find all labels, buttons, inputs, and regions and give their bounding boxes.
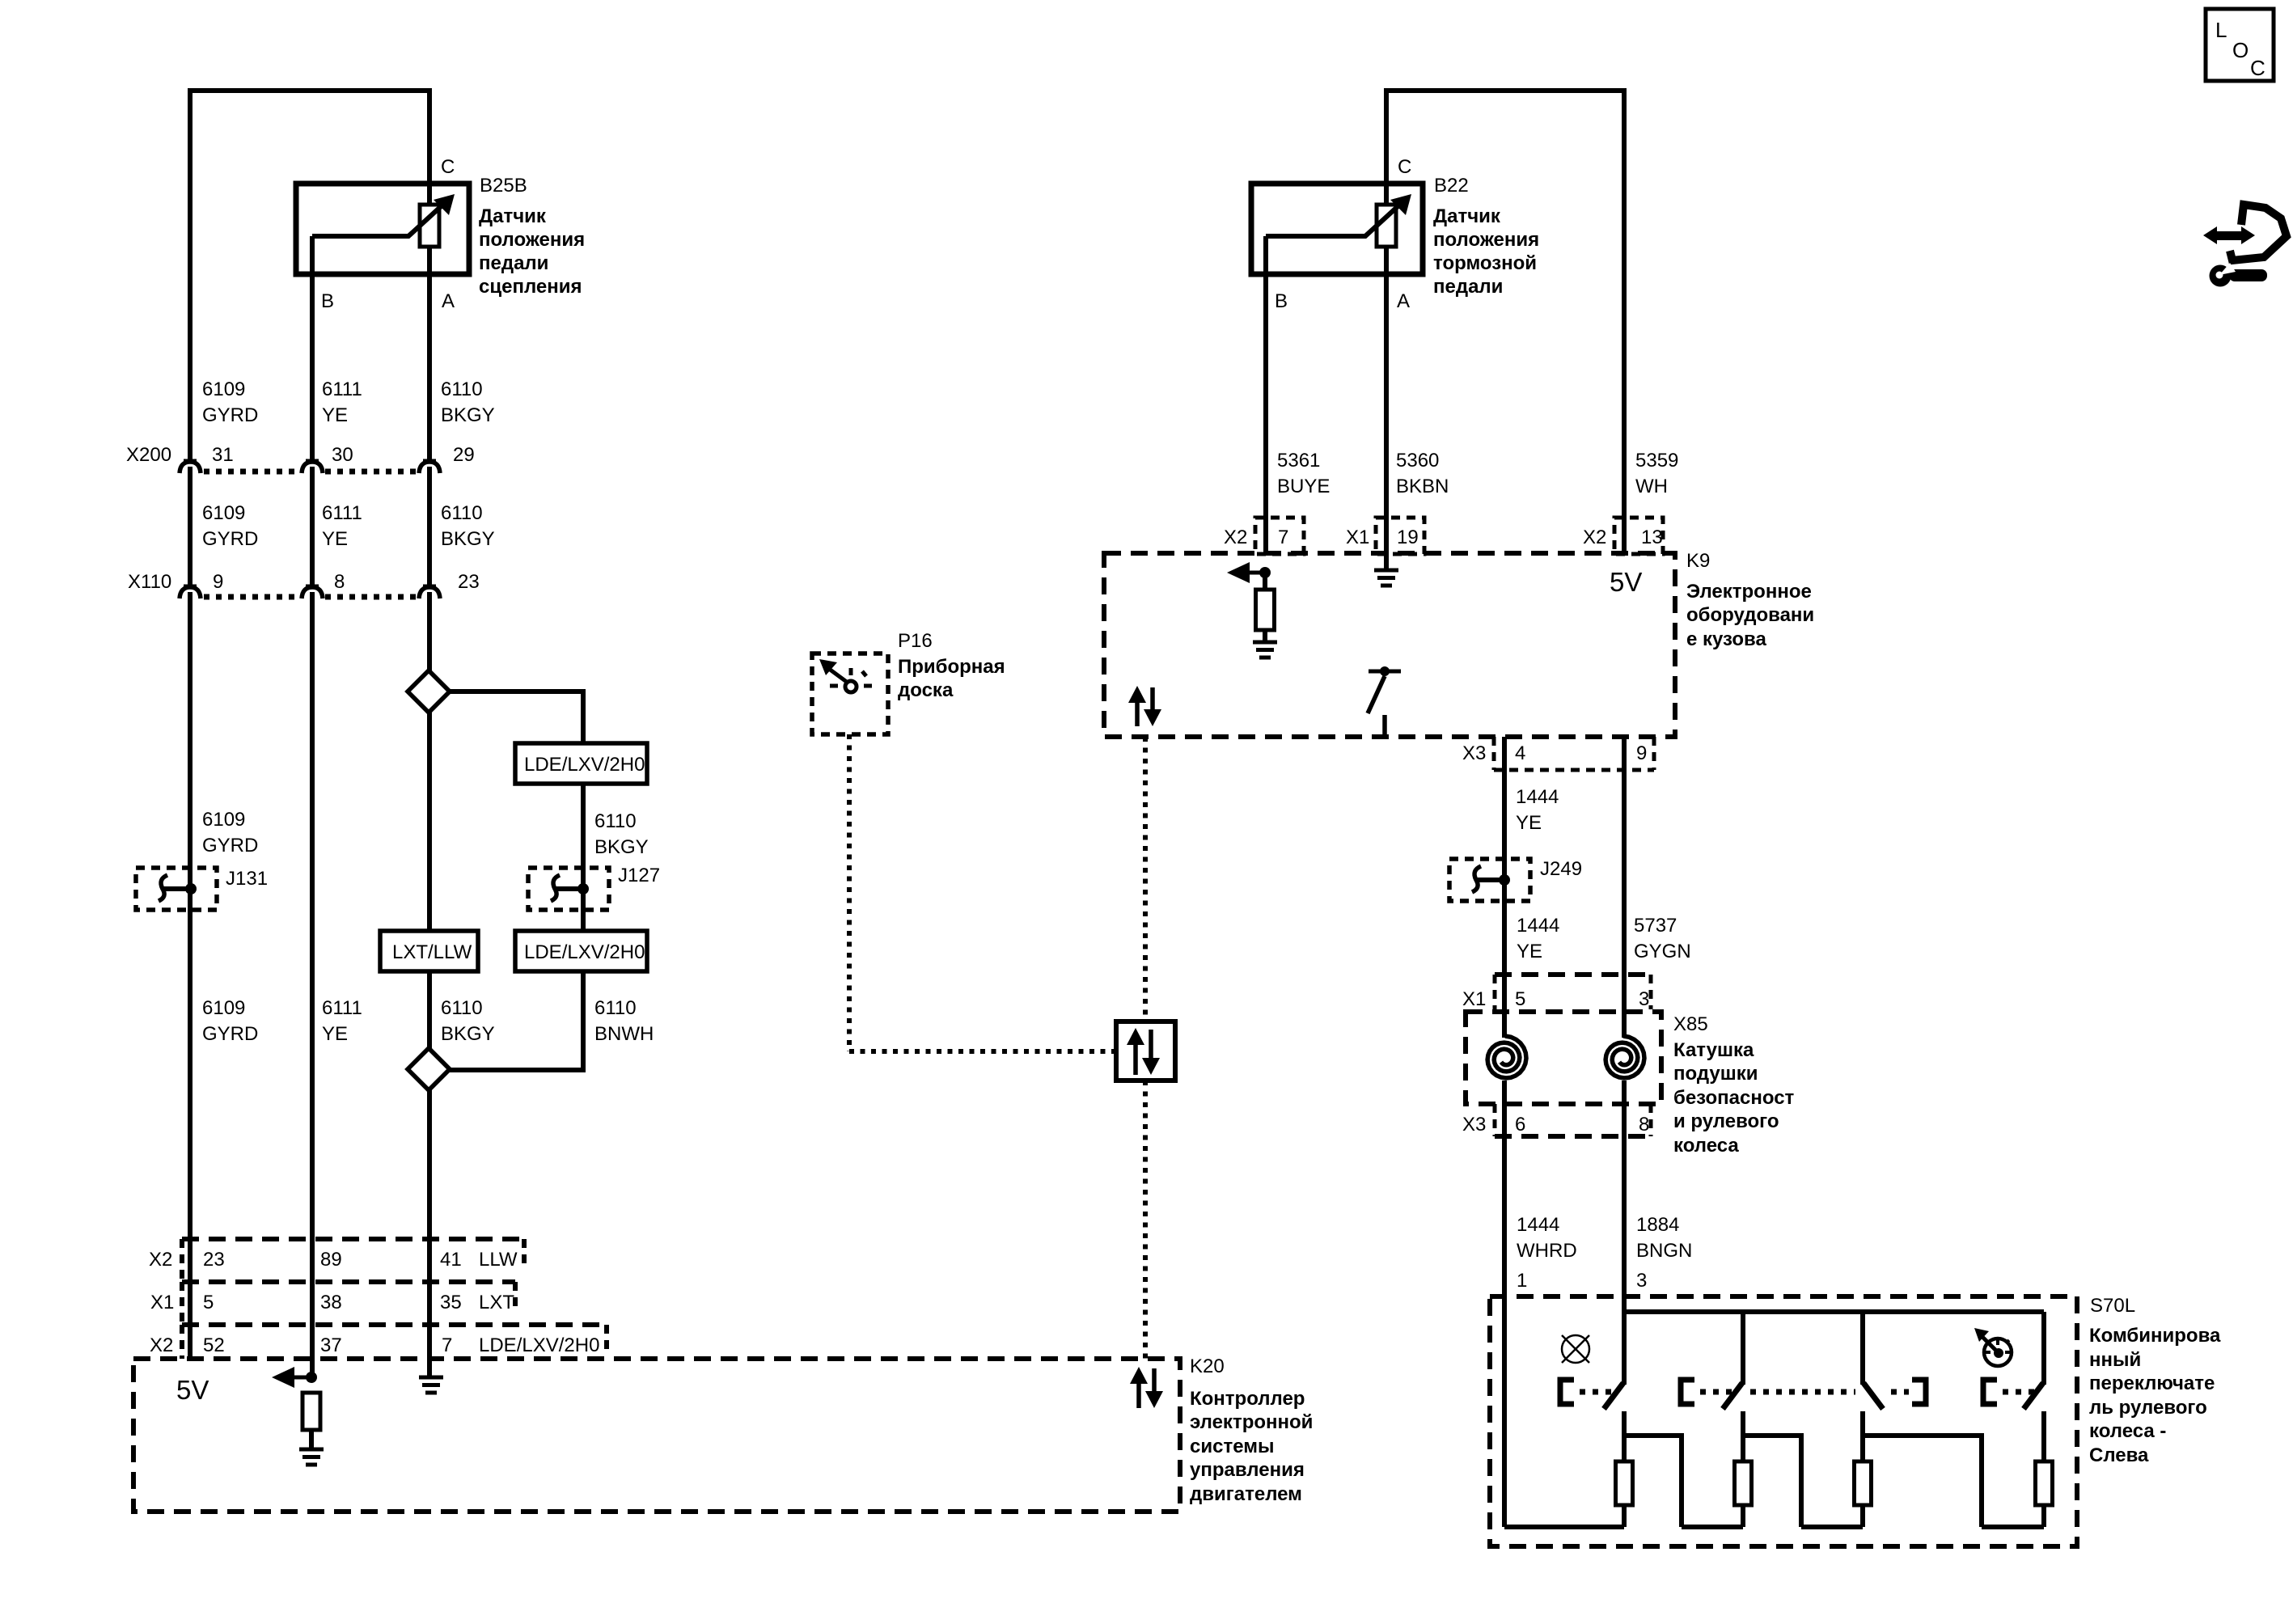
svg-text:переключате: переключате [2089, 1372, 2215, 1394]
svg-text:6110: 6110 [594, 997, 637, 1019]
svg-text:положения: положения [479, 229, 585, 251]
svg-text:BUYE: BUYE [1277, 476, 1330, 497]
svg-text:5: 5 [1515, 988, 1525, 1010]
svg-text:52: 52 [203, 1334, 225, 1356]
svg-text:5: 5 [203, 1292, 214, 1313]
svg-text:BKGY: BKGY [441, 1023, 495, 1045]
svg-text:педали: педали [1433, 276, 1503, 298]
svg-text:Приборная: Приборная [898, 656, 1005, 678]
svg-text:C: C [441, 156, 455, 178]
svg-text:тормозной: тормозной [1433, 252, 1537, 274]
svg-text:1: 1 [1517, 1270, 1527, 1292]
svg-text:X110: X110 [128, 571, 171, 593]
svg-text:Слева: Слева [2089, 1444, 2149, 1466]
svg-text:системы: системы [1190, 1436, 1274, 1457]
svg-text:электронной: электронной [1190, 1411, 1313, 1433]
svg-text:BNWH: BNWH [594, 1023, 654, 1045]
svg-text:GYRD: GYRD [202, 835, 258, 856]
svg-text:Датчик: Датчик [479, 205, 547, 227]
svg-text:38: 38 [320, 1292, 342, 1313]
svg-text:X2: X2 [1583, 527, 1606, 548]
svg-text:5359: 5359 [1635, 450, 1678, 472]
svg-text:6111: 6111 [322, 997, 362, 1019]
svg-text:доска: доска [898, 679, 954, 701]
svg-text:колеса: колеса [1673, 1135, 1739, 1157]
svg-text:BKGY: BKGY [441, 404, 495, 426]
svg-text:е кузова: е кузова [1686, 628, 1766, 650]
svg-text:LDE/LXV/2H0: LDE/LXV/2H0 [524, 754, 645, 776]
svg-text:LXT: LXT [479, 1292, 514, 1313]
svg-text:7: 7 [442, 1334, 452, 1356]
svg-text:J127: J127 [618, 865, 660, 886]
svg-text:YE: YE [1517, 941, 1542, 962]
svg-text:LDE/LXV/2H0: LDE/LXV/2H0 [479, 1334, 599, 1356]
svg-text:6109: 6109 [202, 379, 245, 400]
svg-text:B25B: B25B [480, 175, 527, 197]
svg-text:K9: K9 [1686, 550, 1710, 572]
svg-text:89: 89 [320, 1249, 342, 1271]
svg-text:6109: 6109 [202, 502, 245, 524]
svg-text:безопасност: безопасност [1673, 1087, 1795, 1109]
svg-text:J131: J131 [226, 868, 268, 890]
svg-text:30: 30 [332, 444, 353, 466]
svg-text:двигателем: двигателем [1190, 1483, 1302, 1505]
svg-text:3: 3 [1639, 988, 1649, 1010]
svg-text:X1: X1 [150, 1292, 174, 1313]
svg-text:6110: 6110 [441, 502, 483, 524]
svg-text:1444: 1444 [1517, 915, 1559, 937]
svg-text:X2: X2 [150, 1334, 173, 1356]
svg-text:BNGN: BNGN [1636, 1240, 1692, 1262]
svg-text:B: B [1275, 290, 1288, 312]
svg-text:Комбинирова: Комбинирова [2089, 1325, 2221, 1347]
svg-text:1884: 1884 [1636, 1214, 1679, 1236]
svg-text:P16: P16 [898, 630, 933, 652]
svg-text:GYRD: GYRD [202, 404, 258, 426]
svg-text:O: O [2232, 38, 2249, 62]
svg-text:LXT/LLW: LXT/LLW [392, 941, 472, 963]
svg-text:9: 9 [1636, 742, 1647, 764]
svg-text:L: L [2215, 18, 2227, 42]
svg-text:подушки: подушки [1673, 1063, 1758, 1085]
svg-text:X1: X1 [1462, 988, 1486, 1010]
svg-text:41: 41 [440, 1249, 462, 1271]
svg-text:управления: управления [1190, 1459, 1305, 1481]
svg-text:YE: YE [322, 404, 348, 426]
svg-text:3: 3 [1636, 1270, 1647, 1292]
svg-text:9: 9 [213, 571, 223, 593]
svg-text:Контроллер: Контроллер [1190, 1388, 1305, 1410]
svg-text:BKGY: BKGY [594, 836, 649, 858]
svg-text:нный: нный [2089, 1349, 2141, 1371]
svg-text:WHRD: WHRD [1517, 1240, 1577, 1262]
svg-text:37: 37 [320, 1334, 342, 1356]
svg-text:X200: X200 [126, 444, 171, 466]
svg-text:положения: положения [1433, 229, 1539, 251]
svg-text:Катушка: Катушка [1673, 1039, 1754, 1061]
svg-text:Датчик: Датчик [1433, 205, 1501, 227]
svg-text:и рулевого: и рулевого [1673, 1110, 1779, 1132]
svg-text:GYGN: GYGN [1634, 941, 1691, 962]
svg-text:YE: YE [1516, 812, 1542, 834]
svg-text:YE: YE [322, 528, 348, 550]
svg-text:A: A [442, 290, 455, 312]
svg-text:1444: 1444 [1517, 1214, 1559, 1236]
svg-text:Электронное: Электронное [1686, 581, 1812, 603]
svg-text:A: A [1397, 290, 1410, 312]
svg-text:X1: X1 [1346, 527, 1369, 548]
svg-text:LLW: LLW [479, 1249, 518, 1271]
svg-text:29: 29 [453, 444, 475, 466]
svg-text:23: 23 [458, 571, 480, 593]
svg-text:19: 19 [1397, 527, 1419, 548]
svg-text:6111: 6111 [322, 502, 362, 524]
svg-text:5737: 5737 [1634, 915, 1677, 937]
svg-text:23: 23 [203, 1249, 225, 1271]
svg-text:7: 7 [1278, 527, 1288, 548]
svg-text:8: 8 [1639, 1114, 1649, 1136]
svg-text:13: 13 [1641, 527, 1663, 548]
svg-text:S70L: S70L [2090, 1295, 2135, 1317]
svg-text:4: 4 [1515, 742, 1525, 764]
svg-text:ль рулевого: ль рулевого [2089, 1397, 2207, 1419]
svg-text:K20: K20 [1190, 1355, 1225, 1377]
svg-text:6111: 6111 [322, 379, 362, 400]
svg-text:5361: 5361 [1277, 450, 1320, 472]
svg-text:5V: 5V [176, 1375, 209, 1405]
svg-text:B22: B22 [1434, 175, 1469, 197]
svg-text:5V: 5V [1610, 567, 1642, 597]
svg-text:BKGY: BKGY [441, 528, 495, 550]
svg-text:X3: X3 [1462, 742, 1486, 764]
svg-text:LDE/LXV/2H0: LDE/LXV/2H0 [524, 941, 645, 963]
svg-text:6110: 6110 [594, 810, 637, 832]
svg-text:YE: YE [322, 1023, 348, 1045]
svg-text:X2: X2 [1224, 527, 1247, 548]
svg-text:педали: педали [479, 252, 548, 274]
svg-text:6109: 6109 [202, 809, 245, 831]
svg-text:6109: 6109 [202, 997, 245, 1019]
svg-text:BKBN: BKBN [1396, 476, 1449, 497]
svg-text:оборудовани: оборудовани [1686, 604, 1814, 626]
svg-text:B: B [321, 290, 334, 312]
svg-text:6110: 6110 [441, 997, 483, 1019]
svg-text:1444: 1444 [1516, 786, 1559, 808]
svg-text:сцепления: сцепления [479, 276, 582, 298]
svg-text:C: C [1398, 156, 1411, 178]
svg-text:GYRD: GYRD [202, 528, 258, 550]
svg-text:X3: X3 [1462, 1114, 1486, 1136]
svg-text:C: C [2250, 56, 2266, 80]
svg-text:X85: X85 [1673, 1013, 1708, 1035]
svg-text:8: 8 [334, 571, 345, 593]
svg-text:колеса -: колеса - [2089, 1420, 2166, 1442]
svg-text:5360: 5360 [1396, 450, 1439, 472]
svg-text:35: 35 [440, 1292, 462, 1313]
svg-text:31: 31 [212, 444, 234, 466]
svg-text:J249: J249 [1540, 858, 1582, 880]
svg-text:6: 6 [1515, 1114, 1525, 1136]
svg-text:WH: WH [1635, 476, 1668, 497]
svg-text:GYRD: GYRD [202, 1023, 258, 1045]
svg-text:6110: 6110 [441, 379, 483, 400]
svg-text:X2: X2 [149, 1249, 172, 1271]
